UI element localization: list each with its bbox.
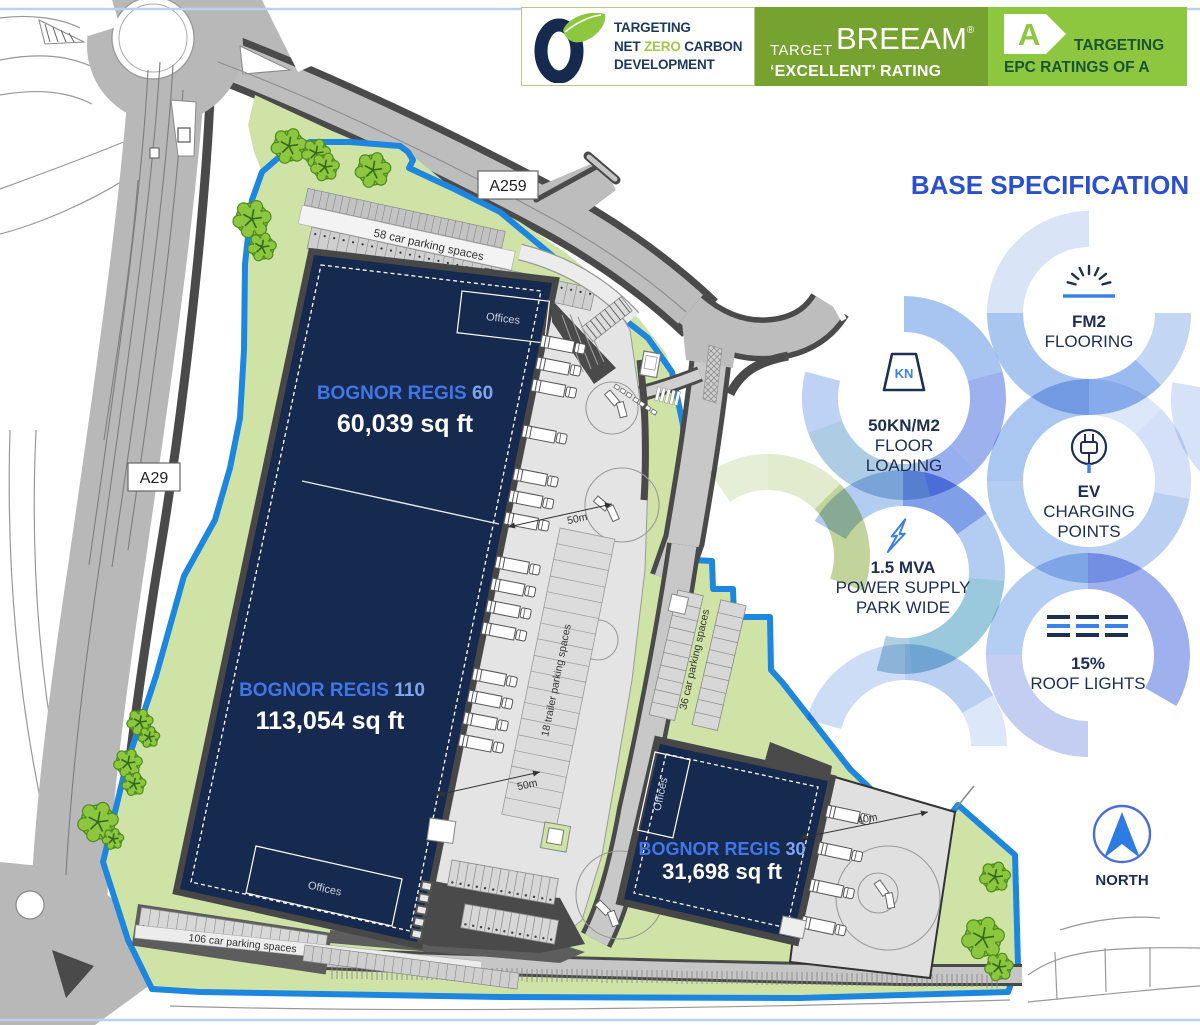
svg-text:BASE SPECIFICATION: BASE SPECIFICATION: [911, 170, 1189, 200]
svg-text:LOADING: LOADING: [866, 456, 943, 475]
svg-text:1.5 MVA: 1.5 MVA: [871, 558, 936, 577]
svg-text:BOGNOR REGIS 60: BOGNOR REGIS 60: [317, 383, 493, 404]
svg-text:FLOORING: FLOORING: [1045, 332, 1134, 351]
svg-text:BOGNOR REGIS 110: BOGNOR REGIS 110: [239, 680, 425, 701]
svg-text:FM2: FM2: [1072, 312, 1106, 331]
svg-text:A29: A29: [140, 470, 169, 487]
svg-text:FLOOR: FLOOR: [875, 436, 934, 455]
svg-text:KN: KN: [895, 366, 914, 381]
svg-text:POINTS: POINTS: [1057, 522, 1120, 541]
svg-text:BOGNOR REGIS 30: BOGNOR REGIS 30: [638, 839, 805, 859]
svg-text:PARK WIDE: PARK WIDE: [856, 598, 950, 617]
svg-text:50KN/M2: 50KN/M2: [868, 416, 940, 435]
svg-text:113,054 sq ft: 113,054 sq ft: [256, 707, 405, 735]
svg-text:POWER SUPPLY: POWER SUPPLY: [836, 578, 971, 597]
svg-text:A259: A259: [489, 178, 526, 195]
svg-text:31,698 sq ft: 31,698 sq ft: [662, 859, 783, 884]
svg-text:ROOF LIGHTS: ROOF LIGHTS: [1030, 674, 1145, 693]
svg-text:NORTH: NORTH: [1095, 872, 1148, 889]
svg-text:60,039 sq ft: 60,039 sq ft: [337, 410, 474, 438]
svg-text:CHARGING: CHARGING: [1043, 502, 1135, 521]
svg-text:A: A: [1018, 17, 1040, 52]
svg-text:EV: EV: [1078, 482, 1101, 501]
svg-text:15%: 15%: [1071, 654, 1105, 673]
